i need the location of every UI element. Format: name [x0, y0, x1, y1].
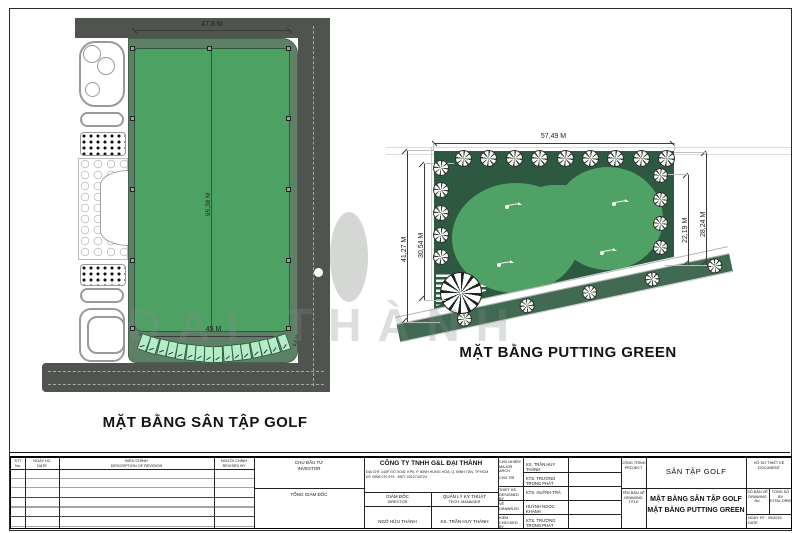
tb-rule: [364, 458, 365, 528]
tree-icon: [433, 227, 449, 243]
tree-icon: [643, 270, 661, 288]
flag-icon: [510, 260, 514, 263]
flag-icon: [613, 248, 617, 251]
document-label: HỒ SƠ THIẾT KẾDOCUMENT: [746, 461, 792, 470]
road-lane-line: [48, 384, 324, 385]
drawn-name: HUỲNH NGỌC KHANH: [524, 504, 568, 515]
net-post: [286, 326, 291, 331]
chief-name: KS. TRẦN HUY THÀNH: [524, 462, 568, 473]
pin-flag: [497, 255, 513, 267]
tree-icon: [506, 150, 523, 167]
garden-bed: [80, 288, 124, 303]
watermark-blob: [330, 212, 368, 302]
pin-flag: [505, 197, 521, 209]
investor-signer: TỔNG GIÁM ĐỐC: [254, 492, 364, 498]
tree-icon: [433, 205, 449, 221]
garden-tree-icon: [97, 57, 115, 75]
date-cell: NGÀY HT : 09/2015DATE: [746, 516, 792, 525]
revision-desc-header: ĐIỀU CHỈNHDESCRIPTION OF REVISION: [59, 459, 214, 468]
road-lane-line: [48, 371, 324, 372]
checker-name: KTS. TRƯƠNG TRỌNG PHÁT: [524, 518, 568, 529]
garden-halfmoon-lawn: [100, 170, 129, 246]
dim-ext: [407, 150, 434, 151]
net-post: [130, 116, 135, 121]
revision-date-header: NGÀY HCDATE: [25, 459, 59, 468]
tb-rule: [254, 488, 364, 489]
garden-tree-icon: [85, 82, 100, 97]
dim-range-length: 95,38 M: [205, 193, 212, 217]
left-plan-title: MẶT BẰNG SÂN TẬP GOLF: [85, 414, 325, 431]
tree-icon: [582, 150, 599, 167]
tech-manager-label: QUẢN LÝ KỸ THUẬTTECH. MANAGER: [431, 494, 498, 504]
tb-rule: [364, 492, 498, 493]
tree-icon: [433, 160, 449, 176]
net-post: [286, 258, 291, 263]
tree-icon: [653, 216, 668, 231]
range-field: [134, 48, 290, 332]
title-block-top-rule: [10, 452, 790, 453]
garden-path: [87, 316, 125, 354]
dim-pg-width: 57,49 M: [433, 133, 674, 140]
drawing-title: MẶT BẰNG SÂN TẬP GOLF MẶT BẰNG PUTTING G…: [644, 495, 748, 516]
dim-ext: [674, 152, 707, 153]
garden-flowerbed: [80, 132, 126, 156]
drawing-sheet: 47,8 M 95,38 M 45 M 5,6 M MẶT BẰNG SÂN T…: [0, 0, 800, 533]
revision-no-header: STTNo.: [11, 459, 25, 468]
net-post: [286, 187, 291, 192]
flag-icon: [625, 199, 629, 202]
net-post: [130, 187, 135, 192]
net-post: [130, 326, 135, 331]
title-block: STTNo. NGÀY HCDATE ĐIỀU CHỈNHDESCRIPTION…: [10, 456, 792, 529]
dim-pg-right-inner: 22,19 M: [682, 218, 689, 243]
tb-rule: [746, 514, 792, 515]
tree-icon: [557, 150, 574, 167]
flag-icon: [518, 202, 522, 205]
company-name: CÔNG TY TNHH G&L ĐẠI THÀNH: [364, 460, 498, 467]
revision-by-header: NGƯỜI CHỈNHREVISED BY: [214, 459, 254, 468]
tree-icon: [653, 168, 668, 183]
pin-flag: [600, 243, 616, 255]
dim-line-pg-right-outer: [706, 152, 707, 265]
project-label: CÔNG TRÌNHPROJECT: [621, 461, 646, 470]
dim-ext: [665, 174, 689, 175]
investor-label: CHỦ ĐẦU TƯINVESTOR: [254, 460, 364, 471]
dim-line-range-width: [133, 30, 291, 31]
pin-flag: [612, 194, 628, 206]
total-sheets-label: TỔNG SỐ BVTOTAL DRW.: [769, 490, 792, 504]
dim-pg-left-inner: 30,54 M: [418, 233, 425, 258]
dim-range-width: 47,8 M: [133, 21, 291, 28]
sheet-no-label: SỐ BẢN VẼDRAWING No.: [746, 490, 769, 504]
director-label: GIÁM ĐỐCDIRECTOR: [364, 494, 431, 504]
tree-icon: [653, 240, 668, 255]
watermark-text: ĐẠI THÀNH: [128, 298, 688, 352]
dim-pg-right-outer: 28,24 M: [700, 212, 707, 237]
tb-rule: [568, 458, 569, 528]
net-post: [207, 46, 212, 51]
dim-ext: [674, 143, 675, 151]
putting-green-waist: [515, 185, 601, 257]
tree-icon: [455, 150, 472, 167]
garden-bed: [80, 112, 124, 127]
tb-rule: [621, 488, 792, 489]
drawing-title-label: TÊN BẢN VẼDRAWING TITLE: [621, 491, 646, 505]
net-post: [286, 116, 291, 121]
lead-label: CHỦ TRÌ: [499, 476, 523, 481]
net-post: [286, 46, 291, 51]
road-bottom: [42, 363, 330, 392]
net-post: [130, 258, 135, 263]
tech-manager-name: KS. TRẦN HUY THÀNH: [431, 519, 498, 525]
garden-flowerbed: [80, 264, 126, 286]
chief-label: CHỦ NHIỆMMAJOR ARCH.: [499, 460, 523, 474]
designer-label: THIẾT KẾDESIGNED BY: [499, 488, 523, 502]
dim-line-pg-width: [433, 143, 674, 144]
tree-icon: [633, 150, 650, 167]
drawn-label: VẼDRAWN BY: [499, 502, 523, 511]
checker-label: KIỂMCHECKED BY: [499, 516, 523, 530]
road-edge-line: [386, 147, 791, 148]
dim-line-pg-left-inner: [424, 163, 425, 300]
tb-rule: [364, 506, 498, 507]
company-address: ĐỊA CHỈ: 140F GÒ XOÀI, KP6, P. BÌNH HƯNG…: [366, 470, 496, 479]
tree-icon: [706, 257, 724, 275]
net-post: [130, 46, 135, 51]
designer-name: KTS. HUỲNH TRÀ: [524, 490, 568, 495]
director-name: NGÔ HỮU THÀNH: [364, 519, 431, 525]
range-centerline: [211, 50, 212, 331]
lead-name: KTS. TRƯƠNG TRỌNG PHÁT: [524, 476, 568, 487]
road-edge-line: [431, 147, 432, 299]
revision-row-lines: [11, 469, 254, 528]
project-name: SÂN TẬP GOLF: [646, 467, 746, 476]
dim-pg-left-outer: 41,27 M: [401, 237, 408, 262]
road-marker-dot: [314, 268, 323, 277]
tree-icon: [653, 192, 668, 207]
dim-ext: [665, 265, 707, 266]
